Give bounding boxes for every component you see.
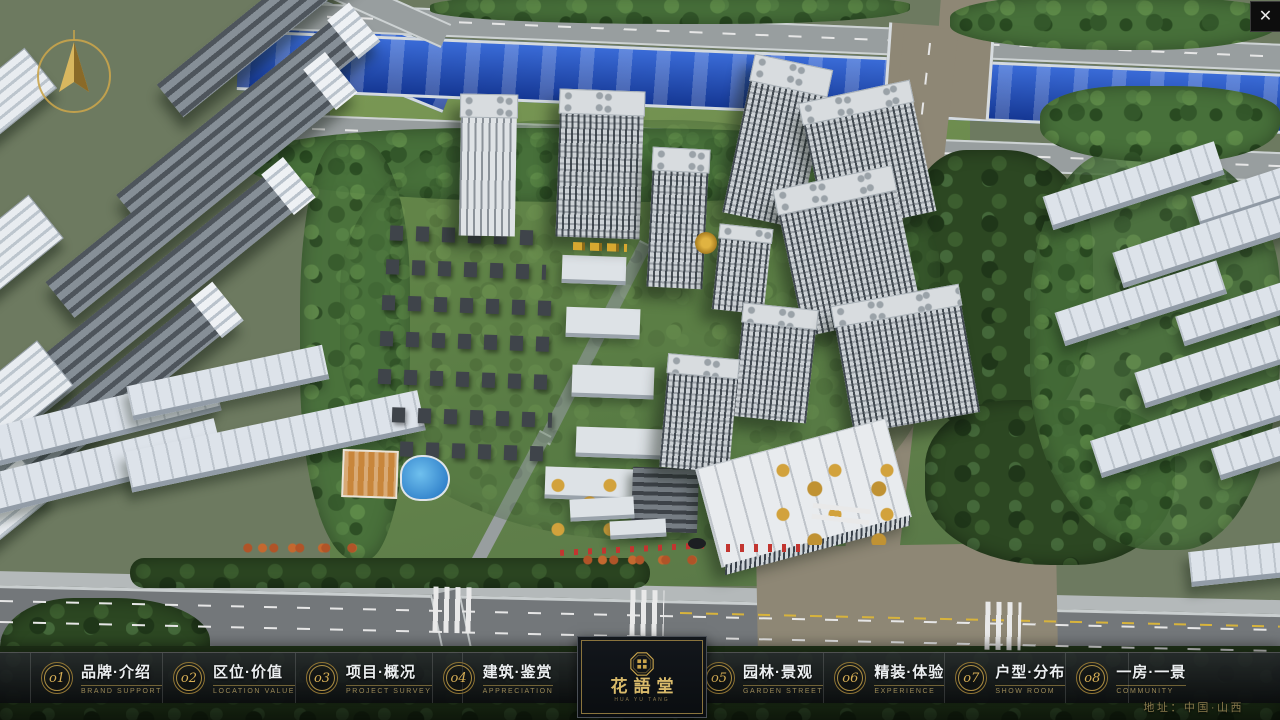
tower	[832, 286, 980, 434]
clubhouse	[341, 449, 399, 499]
menu-item-label: 品牌·介绍	[81, 661, 162, 686]
project-logo-caption: HUA YU TANG	[614, 697, 669, 703]
menu-item-brand-intro[interactable]: o1 品牌·介绍BRAND SUPPORT	[30, 653, 162, 703]
menu-item-caption: EXPERIENCE	[874, 688, 944, 695]
tower	[659, 355, 738, 473]
playground	[695, 232, 717, 254]
mid-rise-building	[576, 426, 665, 459]
project-logo-frame: 花語堂 HUA YU TANG	[581, 640, 703, 714]
menu-item-location-value[interactable]: o2 区位·价值LOCATION VALUE	[162, 653, 295, 703]
menu-item-label: 项目·概况	[346, 661, 432, 686]
menu-item-label: 户型·分布	[995, 661, 1065, 686]
crosswalk	[432, 587, 473, 634]
close-button[interactable]: ✕	[1250, 1, 1280, 32]
menu-number-badge: o6	[834, 662, 866, 694]
menu-item-caption: LOCATION VALUE	[213, 688, 295, 695]
menu-number-badge: o1	[41, 662, 73, 694]
street-trees	[130, 558, 650, 588]
menu-item-floorplan-distribution[interactable]: o7 户型·分布SHOW ROOM	[944, 653, 1065, 703]
menu-item-label: 园林·景观	[743, 661, 823, 686]
menu-item-interior-experience[interactable]: o6 精装·体验EXPERIENCE	[823, 653, 944, 703]
seal-emblem-icon	[629, 651, 655, 677]
menu-number-badge: o5	[703, 662, 735, 694]
mid-rise-building	[565, 307, 640, 340]
menu-item-caption: SHOW ROOM	[995, 688, 1065, 695]
shrub-strip	[240, 540, 360, 556]
entrance-canopy	[610, 519, 667, 540]
menu-item-one-room-one-view[interactable]: o8 一房·一景COMMUNITY	[1065, 653, 1186, 703]
menu-number-badge: o3	[306, 662, 338, 694]
shrub-strip	[580, 552, 700, 565]
tower	[555, 91, 644, 240]
menu-number-badge: o7	[955, 662, 987, 694]
tower	[646, 149, 709, 290]
project-logo-title: 花語堂	[605, 678, 680, 697]
menu-item-landscape[interactable]: o5 园林·景观GARDEN STREET	[692, 653, 823, 703]
menu-item-architecture[interactable]: o4 建筑·鉴赏APPRECIATION	[432, 653, 554, 703]
menu-item-caption: PROJECT SURVEY	[346, 688, 432, 695]
menu-item-caption: GARDEN STREET	[743, 688, 823, 695]
swimming-pool	[400, 455, 450, 501]
masterplan-viewport[interactable]: ✕ o1 品牌·介绍BRAND SUPPORT o2 区位·价值LOCATION…	[0, 0, 1280, 720]
menu-number-badge: o2	[173, 662, 205, 694]
city-building	[1188, 540, 1280, 587]
menu-item-label: 建筑·鉴赏	[483, 661, 554, 686]
menu-item-caption: APPRECIATION	[483, 688, 554, 695]
close-icon: ✕	[1259, 9, 1272, 25]
menu-item-caption: COMMUNITY	[1116, 688, 1186, 695]
tower	[712, 226, 772, 315]
tree-cluster	[1040, 86, 1280, 162]
mid-rise-building	[562, 255, 627, 285]
tower	[732, 304, 817, 423]
golden-shrubs	[770, 455, 920, 545]
menu-group-right: o5 园林·景观GARDEN STREET o6 精装·体验EXPERIENCE…	[692, 653, 1129, 703]
menu-item-label: 精装·体验	[874, 661, 944, 686]
compass-icon	[30, 26, 118, 118]
crosswalk	[629, 590, 664, 637]
menu-item-caption: BRAND SUPPORT	[81, 688, 162, 695]
menu-item-project-overview[interactable]: o3 项目·概况PROJECT SURVEY	[295, 653, 432, 703]
menu-number-badge: o4	[443, 662, 475, 694]
project-logo-panel[interactable]: 花語堂 HUA YU TANG	[577, 636, 707, 718]
menu-group-left: o1 品牌·介绍BRAND SUPPORT o2 区位·价值LOCATION V…	[30, 653, 463, 703]
entrance-gate	[688, 538, 706, 549]
menu-item-label: 一房·一景	[1116, 661, 1186, 686]
tree-cluster	[950, 0, 1280, 50]
entrance-flags	[726, 544, 806, 552]
project-address: 地址：中国·山西	[1143, 699, 1244, 715]
tower	[459, 96, 517, 237]
menu-item-label: 区位·价值	[213, 661, 295, 686]
mid-rise-building	[571, 365, 654, 400]
menu-number-badge: o8	[1076, 662, 1108, 694]
entrance-canopy	[569, 496, 634, 521]
